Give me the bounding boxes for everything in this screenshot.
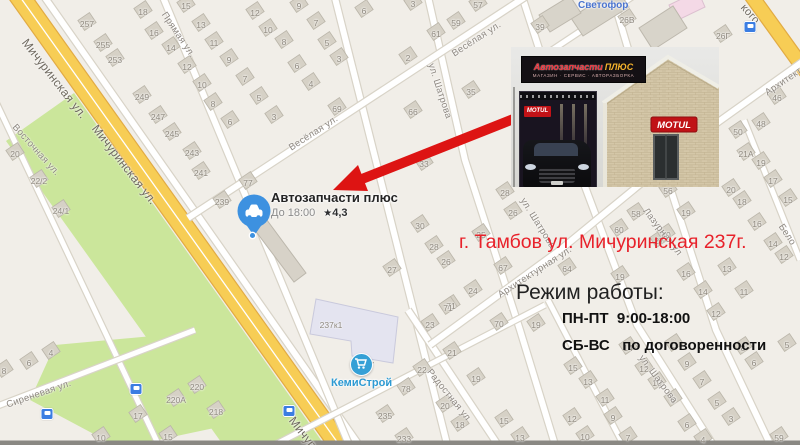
bus-stop-icon[interactable] [41, 408, 54, 420]
storefront-photo: MOTUL АвтозапчастиПЛЮС МАГАЗИН · СЕРВИС … [511, 47, 719, 187]
schedule-weekdays: ПН-ПТ 9:00-18:00 [562, 310, 690, 327]
sign-subtitle: МАГАЗИН · СЕРВИС · АВТОРАЗБОРКА [533, 73, 635, 78]
poi-kemistroy[interactable]: КемиСтрой [331, 353, 392, 389]
motul-wall-label: MOTUL [657, 120, 691, 131]
schedule-weekend: СБ-ВС по договоренности [562, 337, 766, 354]
bus-stop-icon[interactable] [744, 21, 757, 33]
motul-banner-badge: MOTUL [524, 106, 551, 117]
poi-kemistroy-label[interactable]: КемиСтрой [331, 377, 392, 389]
poi-subtitle: До 18:00★4,3 [271, 207, 398, 219]
rating-star-icon: ★ [323, 208, 332, 219]
shop-sign: АвтозапчастиПЛЮС МАГАЗИН · СЕРВИС · АВТО… [521, 56, 646, 83]
sign-plus: ПЛЮС [605, 62, 634, 72]
sign-name: Автозапчасти [534, 62, 603, 72]
address-annotation: г. Тамбов ул. Мичуринская 237г. [459, 231, 747, 254]
bus-stop-icon[interactable] [283, 405, 296, 417]
poi-rating: 4,3 [332, 207, 347, 219]
poi-svetofor-label[interactable]: Светофор [578, 0, 628, 11]
poi-hours: До 18:00 [271, 207, 315, 219]
advert-banner: MOTUL [519, 91, 597, 187]
pin-label[interactable]: Автозапчасти плюс До 18:00★4,3 [271, 190, 398, 219]
bus-stop-icon[interactable] [130, 383, 143, 395]
schedule-title: Режим работы: [516, 281, 664, 305]
shopping-cart-icon [350, 353, 373, 376]
poi-title[interactable]: Автозапчасти плюс [271, 190, 398, 205]
brand-logos-strip [520, 92, 596, 100]
map-canvas[interactable]: 2572552532492472452432412397718161412108… [0, 0, 800, 445]
car-photo [523, 140, 591, 187]
